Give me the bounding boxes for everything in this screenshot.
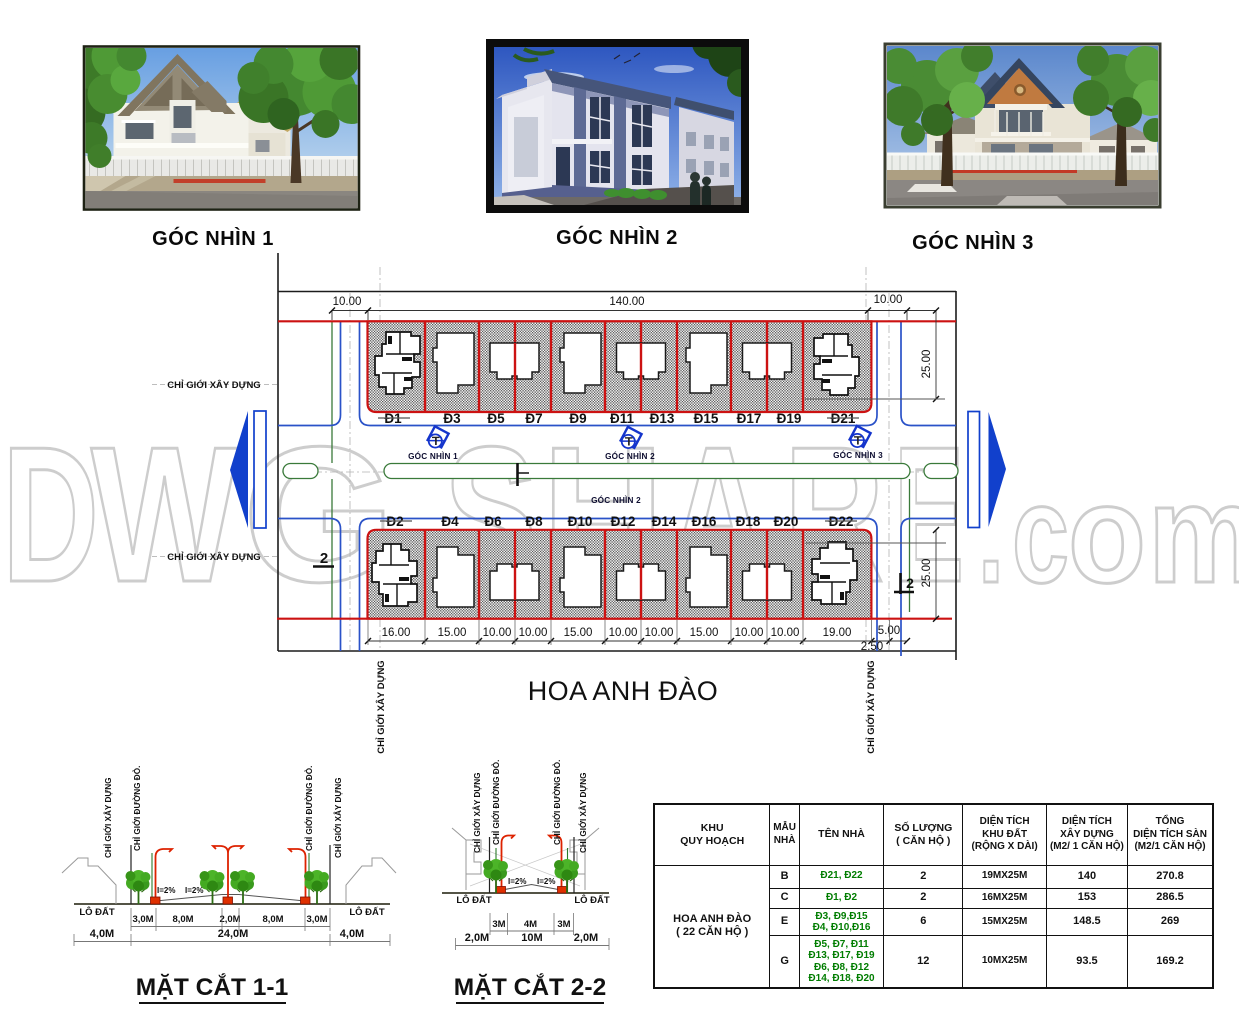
svg-text:Đ5: Đ5 xyxy=(487,411,505,426)
svg-text:Đ10: Đ10 xyxy=(568,514,593,529)
svg-text:3,0M: 3,0M xyxy=(306,914,327,925)
svg-text:24,0M: 24,0M xyxy=(218,928,249,940)
svg-text:25.00: 25.00 xyxy=(921,559,933,588)
svg-text:2,0M: 2,0M xyxy=(465,932,489,944)
svg-text:2: 2 xyxy=(906,575,914,591)
svg-text:Đ15: Đ15 xyxy=(694,411,719,426)
svg-text:Đ7: Đ7 xyxy=(525,411,542,426)
svg-text:CHỈ GIỚI ĐƯỜNG ĐỎ.: CHỈ GIỚI ĐƯỜNG ĐỎ. xyxy=(303,766,314,851)
svg-text:140.00: 140.00 xyxy=(609,296,644,308)
svg-text:10.00: 10.00 xyxy=(609,627,638,639)
svg-text:10.00: 10.00 xyxy=(874,294,903,306)
svg-text:5.00: 5.00 xyxy=(878,625,900,637)
svg-text:GÓC NHÌN 1: GÓC NHÌN 1 xyxy=(152,226,274,250)
svg-text:CHỈ GIỚI ĐƯỜNG ĐỎ.: CHỈ GIỚI ĐƯỜNG ĐỎ. xyxy=(551,760,562,845)
svg-text:2,0M: 2,0M xyxy=(574,932,598,944)
svg-text:CHỈ GIỚI XÂY DỰNG: CHỈ GIỚI XÂY DỰNG xyxy=(102,778,113,859)
svg-text:19.00: 19.00 xyxy=(823,627,852,639)
svg-text:Đ3: Đ3 xyxy=(443,411,461,426)
svg-text:o: o xyxy=(1068,455,1146,612)
svg-text:10.00: 10.00 xyxy=(771,627,800,639)
svg-text:15.00: 15.00 xyxy=(564,627,593,639)
svg-text:c: c xyxy=(1012,455,1069,612)
svg-text:Đ6: Đ6 xyxy=(484,514,502,529)
svg-text:Đ13: Đ13 xyxy=(650,411,675,426)
svg-text:10.00: 10.00 xyxy=(333,296,362,308)
svg-text:10.00: 10.00 xyxy=(735,627,764,639)
svg-text:I=2%: I=2% xyxy=(185,886,203,895)
svg-text:CHỈ GIỚI ĐƯỜNG ĐỎ.: CHỈ GIỚI ĐƯỜNG ĐỎ. xyxy=(131,766,142,851)
svg-text:Đ16: Đ16 xyxy=(692,514,717,529)
svg-text:MẶT CẮT 2-2: MẶT CẮT 2-2 xyxy=(454,973,606,1001)
svg-text:I=2%: I=2% xyxy=(508,877,526,886)
svg-text:4M: 4M xyxy=(524,919,537,930)
svg-text:15.00: 15.00 xyxy=(690,627,719,639)
svg-text:HOA ANH ĐÀO: HOA ANH ĐÀO xyxy=(528,676,718,706)
svg-text:Đ12: Đ12 xyxy=(611,514,636,529)
svg-text:CHỈ GIỚI XÂY DỰNG: CHỈ GIỚI XÂY DỰNG xyxy=(167,551,260,563)
svg-text:W: W xyxy=(91,406,238,622)
svg-text:15.00: 15.00 xyxy=(438,627,467,639)
svg-text:GÓC NHÌN 3: GÓC NHÌN 3 xyxy=(833,449,883,460)
svg-text:16.00: 16.00 xyxy=(382,627,411,639)
svg-text:m: m xyxy=(1148,455,1239,612)
svg-text:LÔ ĐẤT: LÔ ĐẤT xyxy=(456,894,492,906)
svg-text:25.00: 25.00 xyxy=(921,350,933,379)
svg-text:GÓC NHÌN 2: GÓC NHÌN 2 xyxy=(591,494,641,505)
svg-text:CHỈ GIỚI XÂY DỰNG: CHỈ GIỚI XÂY DỰNG xyxy=(332,778,343,859)
svg-text:10M: 10M xyxy=(521,932,542,944)
svg-text:D: D xyxy=(2,406,99,622)
svg-text:Đ4: Đ4 xyxy=(441,514,459,529)
svg-text:Đ17: Đ17 xyxy=(737,411,762,426)
svg-text:E: E xyxy=(894,406,964,622)
svg-text:CHỈ GIỚI XÂY DỰNG: CHỈ GIỚI XÂY DỰNG xyxy=(167,379,260,391)
svg-text:CHỈ GIỚI XÂY DỰNG: CHỈ GIỚI XÂY DỰNG xyxy=(865,660,877,753)
svg-text:8,0M: 8,0M xyxy=(172,914,193,925)
svg-text:8,0M: 8,0M xyxy=(262,914,283,925)
svg-text:Đ18: Đ18 xyxy=(736,514,761,529)
svg-text:I=2%: I=2% xyxy=(157,886,175,895)
svg-text:GÓC NHÌN 1: GÓC NHÌN 1 xyxy=(408,450,458,461)
svg-text:3,0M: 3,0M xyxy=(132,914,153,925)
svg-text:LÔ ĐẤT: LÔ ĐẤT xyxy=(574,894,610,906)
svg-text:2.50: 2.50 xyxy=(861,641,883,653)
svg-text:CHỈ GIỚI XÂY DỰNG: CHỈ GIỚI XÂY DỰNG xyxy=(577,773,588,854)
svg-text:CHỈ GIỚI XÂY DỰNG: CHỈ GIỚI XÂY DỰNG xyxy=(471,773,482,854)
svg-text:4,0M: 4,0M xyxy=(90,928,114,940)
svg-text:GÓC NHÌN 3: GÓC NHÌN 3 xyxy=(912,230,1034,254)
svg-text:10.00: 10.00 xyxy=(519,627,548,639)
svg-text:Đ11: Đ11 xyxy=(610,411,635,426)
svg-text:GÓC NHÌN 2: GÓC NHÌN 2 xyxy=(556,225,678,249)
svg-text:CHỈ GIỚI ĐƯỜNG ĐỎ.: CHỈ GIỚI ĐƯỜNG ĐỎ. xyxy=(490,760,501,845)
svg-text:3M: 3M xyxy=(492,919,505,930)
svg-text:Đ8: Đ8 xyxy=(525,514,543,529)
svg-text:Đ19: Đ19 xyxy=(777,411,802,426)
svg-text:3M: 3M xyxy=(557,919,570,930)
svg-text:4,0M: 4,0M xyxy=(340,928,364,940)
svg-text:MẶT CẮT 1-1: MẶT CẮT 1-1 xyxy=(136,973,288,1001)
svg-text:2,0M: 2,0M xyxy=(219,914,240,925)
svg-text:Đ20: Đ20 xyxy=(774,514,799,529)
svg-text:Đ14: Đ14 xyxy=(652,514,677,529)
svg-text:10.00: 10.00 xyxy=(483,627,512,639)
svg-text:2: 2 xyxy=(320,550,328,567)
svg-text:LÔ ĐẤT: LÔ ĐẤT xyxy=(349,906,385,918)
svg-text:LÔ ĐẤT: LÔ ĐẤT xyxy=(79,906,115,918)
svg-text:Đ9: Đ9 xyxy=(569,411,586,426)
svg-text:I=2%: I=2% xyxy=(537,877,555,886)
svg-text:CHỈ GIỚI XÂY DỰNG: CHỈ GIỚI XÂY DỰNG xyxy=(375,660,387,753)
svg-text:GÓC NHÌN 2: GÓC NHÌN 2 xyxy=(605,450,655,461)
svg-text:10.00: 10.00 xyxy=(645,627,674,639)
